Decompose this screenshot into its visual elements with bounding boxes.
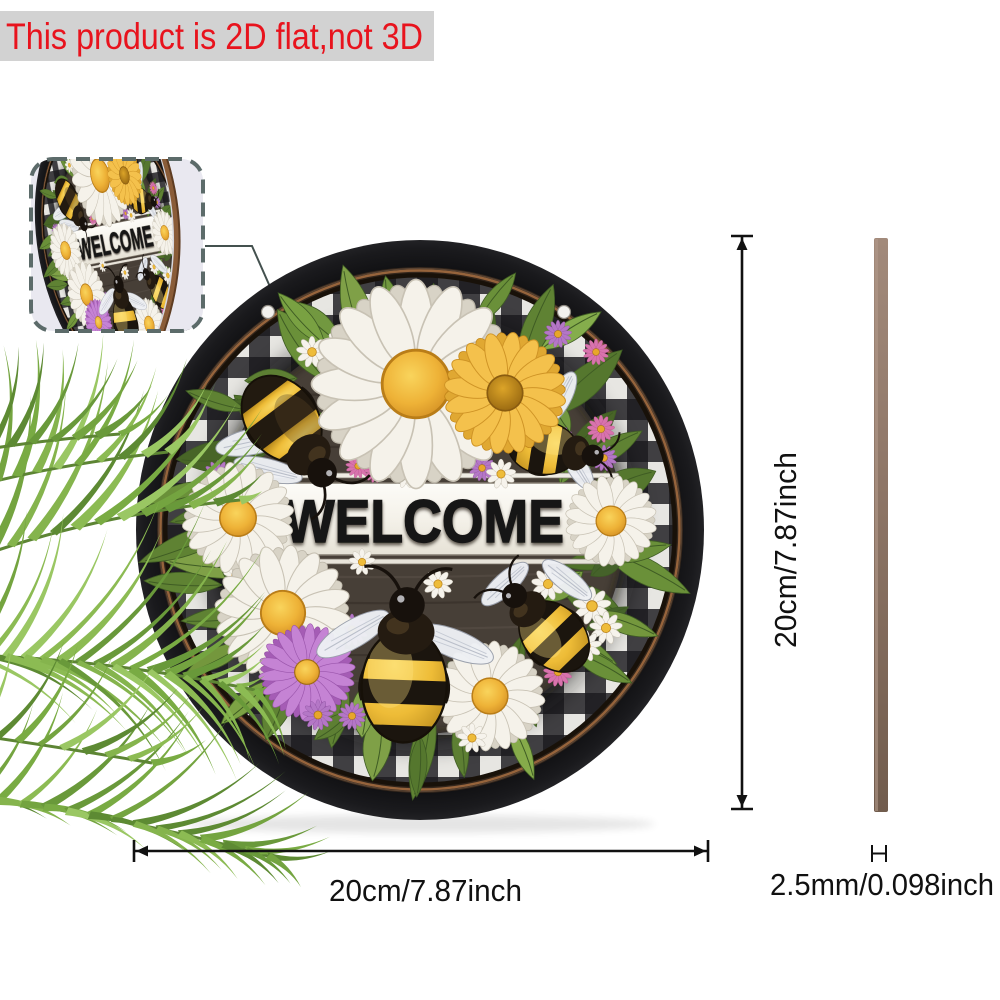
- svg-text:This product is 2D flat,not 3D: This product is 2D flat,not 3D: [6, 16, 423, 57]
- svg-text:20cm/7.87inch: 20cm/7.87inch: [329, 873, 522, 908]
- svg-text:2.5mm/0.098inch: 2.5mm/0.098inch: [770, 867, 994, 902]
- svg-text:20cm/7.87inch: 20cm/7.87inch: [768, 452, 803, 648]
